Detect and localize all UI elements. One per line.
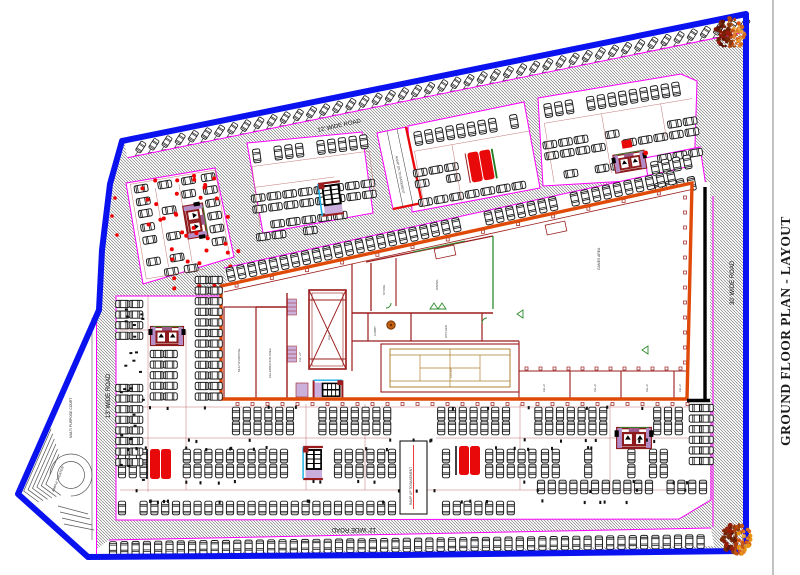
svg-text:HALL: HALL [327,332,331,340]
svg-text:30' WIDE ROAD: 30' WIDE ROAD [730,260,736,305]
svg-text:LVL+P: LVL+P [593,384,597,392]
svg-text:GROUND FLOOR PLAN - LAYOUT: GROUND FLOOR PLAN - LAYOUT [778,216,793,446]
svg-text:CELEBRATION AREA: CELEBRATION AREA [268,348,272,378]
svg-text:13' WIDE ROAD: 13' WIDE ROAD [106,373,112,418]
svg-text:STORE: STORE [382,285,386,295]
svg-text:LVL+P: LVL+P [678,384,682,392]
svg-text:DINING: DINING [435,279,439,290]
svg-text:MULTIPURPOSE: MULTIPURPOSE [237,349,241,372]
svg-text:LVL+P: LVL+P [645,384,649,392]
svg-text:KITCHEN: KITCHEN [444,325,448,338]
svg-text:LVL+P: LVL+P [542,384,546,392]
svg-text:LOBBY: LOBBY [373,326,377,336]
svg-text:LVL +P: LVL +P [298,352,302,362]
svg-text:MULTI PURPOSE COURT: MULTI PURPOSE COURT [69,398,73,438]
svg-text:12' WIDE ROAD: 12' WIDE ROAD [331,526,376,532]
svg-text:COURT: COURT [449,367,453,378]
svg-text:GAMES AREA: GAMES AREA [597,247,601,270]
svg-text:RAMP UP TO BASEMENT: RAMP UP TO BASEMENT [409,467,413,505]
